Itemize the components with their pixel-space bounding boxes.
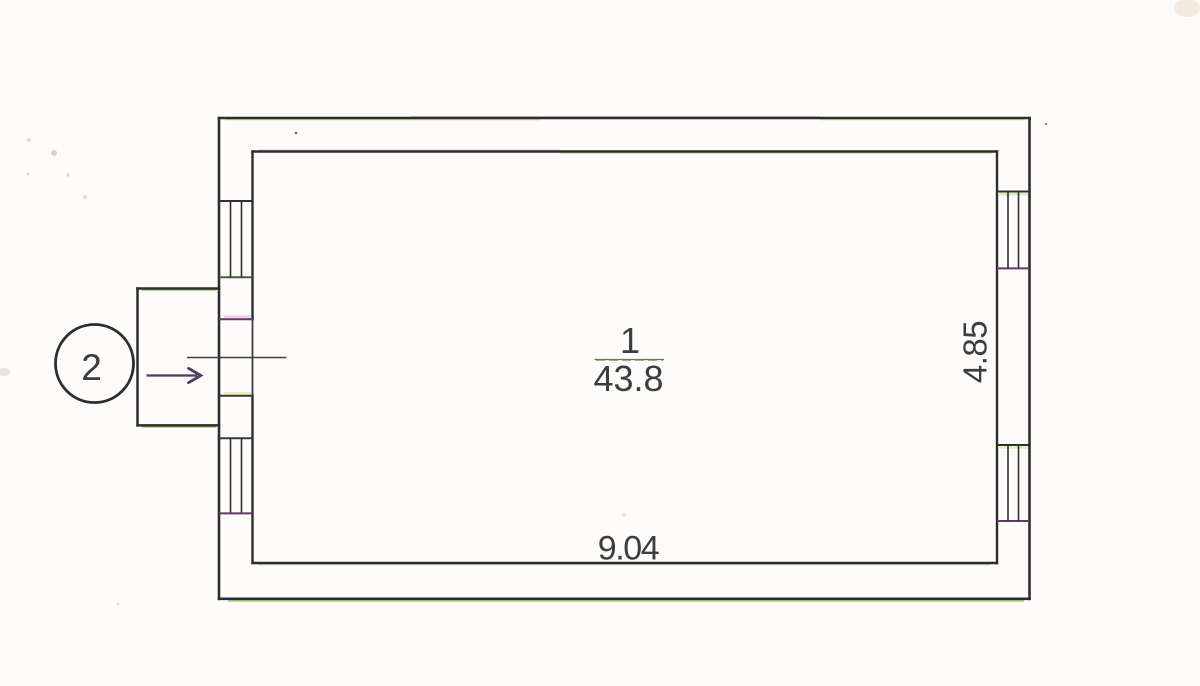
svg-text:2: 2: [81, 347, 102, 388]
svg-text:9.04: 9.04: [598, 530, 659, 568]
svg-text:4.85: 4.85: [957, 321, 994, 383]
svg-text:1: 1: [620, 320, 640, 361]
svg-text:43.8: 43.8: [593, 358, 663, 399]
